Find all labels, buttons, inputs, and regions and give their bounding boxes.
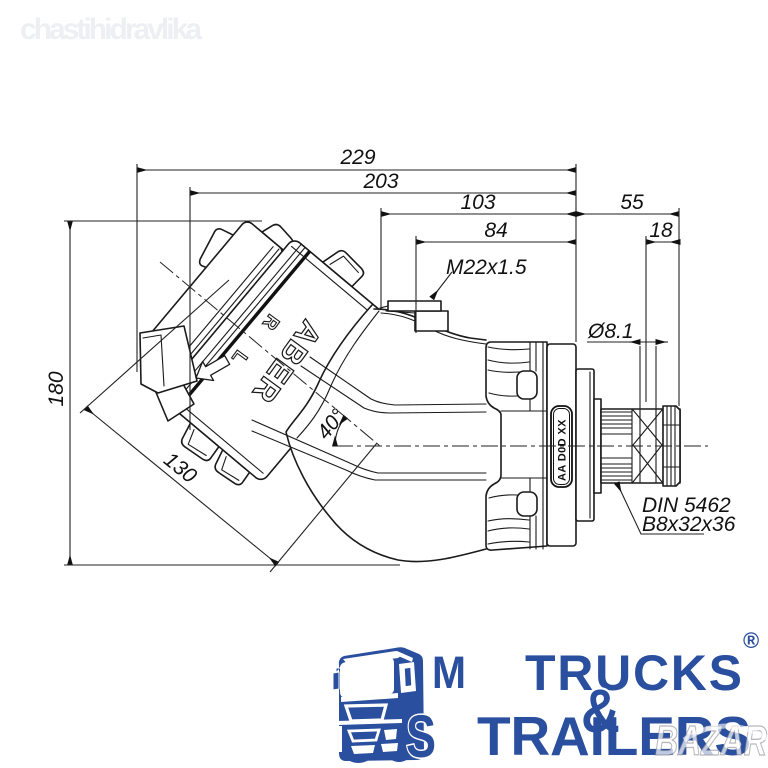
svg-text:AA D0D XX: AA D0D XX xyxy=(557,419,569,481)
svg-text:Ø8.1: Ø8.1 xyxy=(587,320,634,343)
svg-text:229: 229 xyxy=(339,146,375,169)
svg-text:203: 203 xyxy=(362,170,398,193)
svg-text:S: S xyxy=(406,703,436,768)
svg-text:®: ® xyxy=(743,628,759,653)
svg-text:M22x1.5: M22x1.5 xyxy=(446,256,527,279)
svg-text:103: 103 xyxy=(460,191,495,214)
svg-text:18: 18 xyxy=(649,219,673,242)
svg-text:BAZAR: BAZAR xyxy=(655,717,768,764)
svg-text:180: 180 xyxy=(45,371,68,406)
svg-text:B8x32x36: B8x32x36 xyxy=(642,513,736,536)
svg-text:TRUCKS: TRUCKS xyxy=(525,645,742,701)
svg-text:M: M xyxy=(432,647,466,698)
svg-text:chastihidravlika: chastihidravlika xyxy=(20,13,202,46)
svg-text:55: 55 xyxy=(620,191,644,214)
svg-text:84: 84 xyxy=(484,219,507,242)
